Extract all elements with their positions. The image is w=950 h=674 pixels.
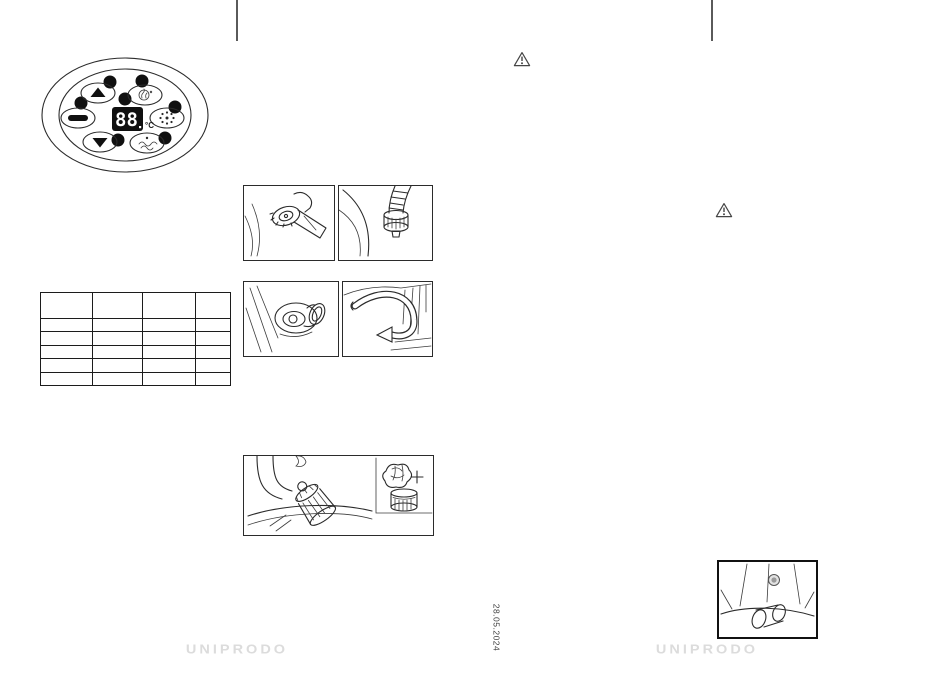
plus-icon	[411, 471, 423, 483]
table-cell	[41, 293, 93, 319]
massage-jets-icon	[139, 137, 157, 150]
table-cell	[93, 293, 143, 319]
table-cell	[143, 359, 196, 372]
print-date-mark: 28.05.2024	[489, 599, 502, 657]
manual-page-spread: 88 °C	[0, 0, 950, 674]
figure-hose-panel	[338, 185, 433, 261]
corrugated-hose	[389, 186, 411, 213]
table-row	[41, 372, 231, 385]
figure-cap-panel	[243, 281, 339, 357]
hose-arrow	[351, 294, 414, 342]
table-header-row	[41, 293, 231, 319]
table-cell	[196, 319, 231, 332]
filter-cartridge	[287, 474, 338, 528]
temperature-display: 88 °C	[112, 107, 154, 131]
table-cell	[196, 372, 231, 385]
brand-logo: UNIPRODO	[177, 643, 297, 657]
valve-knob	[270, 203, 302, 229]
heater-button	[128, 85, 162, 105]
temp-up-button	[81, 83, 115, 103]
warning-icon	[715, 202, 733, 219]
table-cell	[41, 332, 93, 345]
table-cell	[93, 332, 143, 345]
table-cell	[93, 319, 143, 332]
heater-icon	[139, 89, 152, 100]
control-panel-diagram: 88 °C	[40, 55, 212, 177]
table-row	[41, 319, 231, 332]
display-unit-label: °C	[145, 121, 154, 130]
table-cell	[41, 319, 93, 332]
fold-mark-left	[236, 0, 238, 41]
up-arrow-icon	[91, 88, 106, 98]
table-cell	[143, 319, 196, 332]
table-cell	[196, 345, 231, 358]
figure-hose-arrow-panel	[342, 281, 433, 357]
table-cell	[41, 359, 93, 372]
massage-button	[130, 133, 164, 153]
hand-lines	[270, 515, 291, 531]
figure-cap-hose	[243, 281, 433, 357]
table-row	[41, 359, 231, 372]
warning-icon	[513, 51, 531, 68]
table-cell	[41, 372, 93, 385]
display-decimal-dot	[139, 126, 141, 128]
table-cell	[93, 345, 143, 358]
spec-table	[40, 292, 231, 386]
fold-mark-right	[711, 0, 713, 41]
table-cell	[143, 372, 196, 385]
table-cell	[196, 332, 231, 345]
table-cell	[196, 293, 231, 319]
table-cell	[196, 359, 231, 372]
bubble-button	[150, 108, 184, 128]
figure-valve-panel	[243, 185, 335, 261]
table-cell	[143, 332, 196, 345]
figure-filter-replacement	[243, 455, 434, 536]
threaded-nut	[384, 211, 408, 238]
table-row	[41, 345, 231, 358]
wall-fitting	[296, 456, 306, 467]
display-value: 88	[115, 109, 138, 131]
table-cell	[93, 372, 143, 385]
jet-icon	[68, 115, 88, 121]
figure-valve-hose	[243, 185, 433, 261]
table-row	[41, 332, 231, 345]
drain-cap-icon	[769, 575, 780, 586]
table-cell	[143, 345, 196, 358]
table-cell	[93, 359, 143, 372]
drain-plug-icon	[750, 603, 788, 630]
valve-cap-open	[275, 301, 328, 333]
down-arrow-icon	[93, 138, 108, 148]
table-cell	[41, 345, 93, 358]
bubbles-icon	[159, 111, 174, 124]
new-filter-icon	[391, 489, 417, 511]
replacement-inset	[376, 458, 432, 513]
figure-drain-plug	[717, 560, 818, 639]
brand-logo: UNIPRODO	[647, 643, 767, 657]
jet-button	[61, 108, 95, 128]
table-cell	[143, 293, 196, 319]
